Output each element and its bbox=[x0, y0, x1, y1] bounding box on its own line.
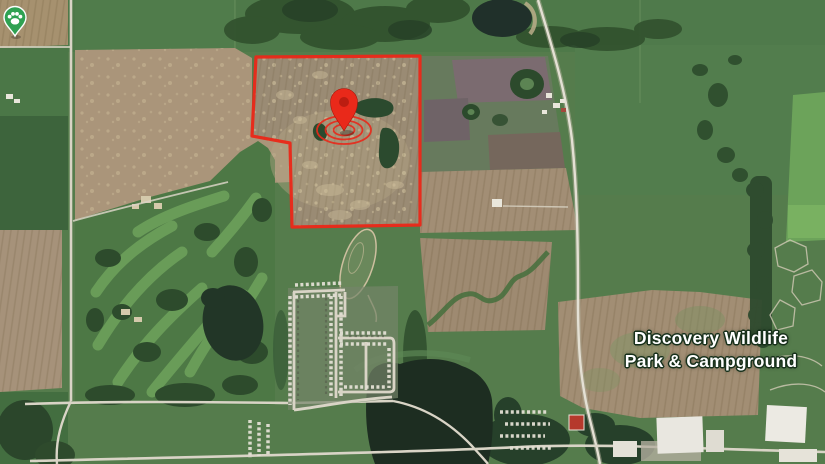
poi-label[interactable]: Discovery Wildlife Park & Campground bbox=[598, 327, 824, 373]
red-roof-building bbox=[569, 415, 584, 430]
map-viewport[interactable]: Discovery Wildlife Park & Campground bbox=[0, 0, 825, 464]
pond-north bbox=[472, 0, 532, 37]
paw-pin-icon[interactable] bbox=[0, 0, 30, 40]
pin-shadow bbox=[340, 130, 354, 136]
satellite-imagery bbox=[0, 0, 825, 464]
poi-label-line1: Discovery Wildlife bbox=[598, 327, 824, 350]
poi-label-line2: Park & Campground bbox=[598, 350, 824, 373]
